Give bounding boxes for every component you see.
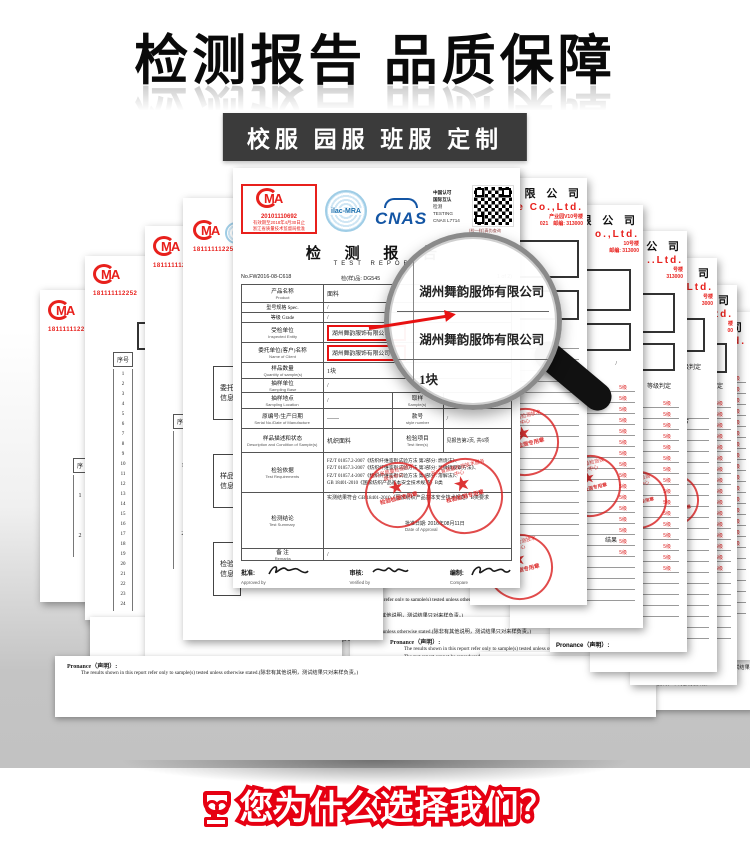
page-title: 检测报告 品质保障 xyxy=(0,16,750,95)
qr-code-icon xyxy=(473,186,513,226)
signature-script xyxy=(266,562,310,580)
cma-certification-box: MA 20101110692 有效期至2018年4月30日止 浙江省质量技术监督… xyxy=(241,184,317,234)
cma-mark-icon: MA xyxy=(256,188,302,214)
statement: Pronance（声明）: xyxy=(556,640,687,649)
cma-mark-icon: MA 181111112252 xyxy=(93,264,139,297)
accreditation-text: 中国认可 国际互认 检测 TESTING CNAS L7714 xyxy=(433,190,460,224)
field-box xyxy=(583,323,631,351)
floor-shadow xyxy=(25,760,725,796)
subtitle-banner: 校服 园服 班服 定制 xyxy=(223,113,527,161)
ilac-mra-icon: ilac-MRA xyxy=(325,190,367,232)
statement-strip: Pronance（声明）: The results shown in this … xyxy=(55,656,656,717)
signature-approved: 批准:Approved by xyxy=(241,562,310,585)
seq-column: 序号 1 2 3 4 5 6 7 8 9 10 11 12 13 14 15 1… xyxy=(113,352,133,611)
cnas-logo: CNAS xyxy=(375,198,427,229)
signature-verified: 审核:Verified by xyxy=(350,562,411,585)
signature-script xyxy=(468,562,512,580)
signature-row: 批准:Approved by 审核:Verified by 编制:Compare xyxy=(241,562,512,585)
signature-script xyxy=(370,562,410,580)
promo-section: 检测报告 品质保障 校服 园服 班服 定制 MA 181111112252 序 … xyxy=(0,0,750,852)
signature-compiled: 编制:Compare xyxy=(450,562,512,585)
